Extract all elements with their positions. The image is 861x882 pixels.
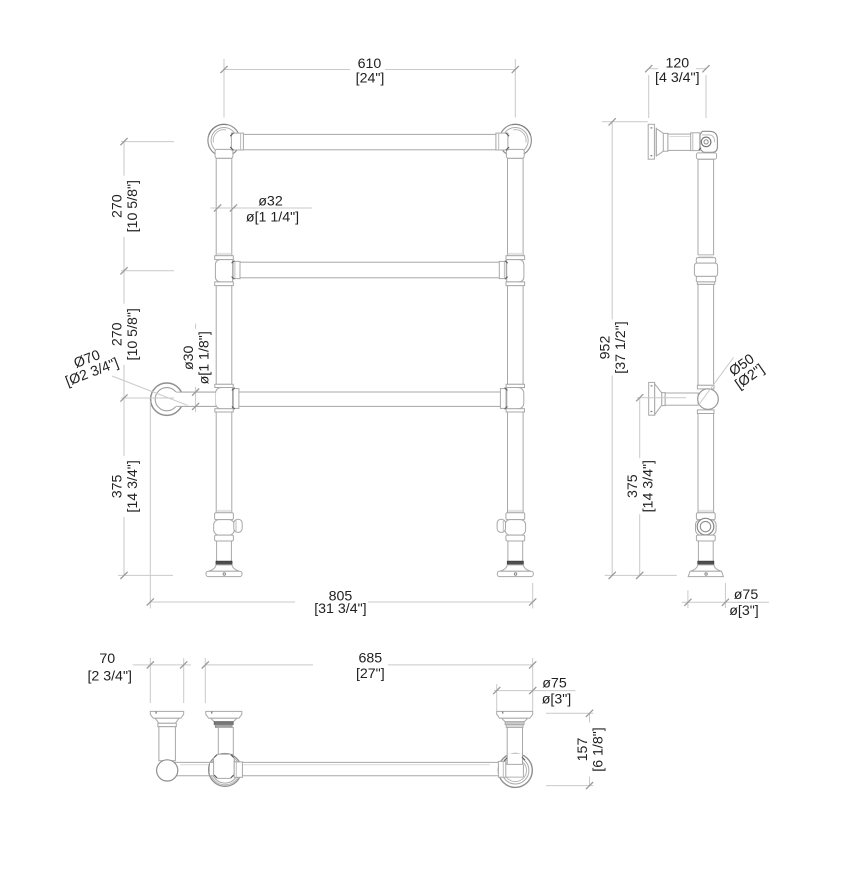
svg-text:[2 3/4"]: [2 3/4"] — [87, 669, 131, 685]
svg-text:[14 3/4"]: [14 3/4"] — [641, 460, 657, 512]
svg-text:157: 157 — [575, 738, 591, 762]
svg-text:952: 952 — [598, 336, 614, 360]
svg-text:270: 270 — [110, 194, 126, 218]
svg-text:270: 270 — [110, 322, 126, 346]
svg-text:ø30: ø30 — [181, 345, 197, 370]
svg-text:[6 1/8"]: [6 1/8"] — [591, 727, 607, 771]
svg-text:[10 5/8"]: [10 5/8"] — [125, 308, 141, 360]
svg-text:ø75: ø75 — [542, 675, 567, 691]
svg-text:ø[3"]: ø[3"] — [542, 692, 571, 708]
svg-text:685: 685 — [358, 650, 382, 666]
svg-text:[24"]: [24"] — [356, 71, 385, 87]
svg-text:ø[1 1/8"]: ø[1 1/8"] — [197, 331, 213, 384]
svg-text:[4 3/4"]: [4 3/4"] — [655, 70, 699, 86]
svg-text:375: 375 — [110, 474, 126, 498]
svg-text:ø[1 1/4"]: ø[1 1/4"] — [246, 209, 299, 225]
svg-text:[27"]: [27"] — [356, 666, 385, 682]
svg-text:[31 3/4"]: [31 3/4"] — [314, 601, 366, 617]
svg-text:[37 1/2"]: [37 1/2"] — [613, 321, 629, 373]
svg-text:[10 5/8"]: [10 5/8"] — [125, 180, 141, 232]
svg-text:70: 70 — [99, 651, 115, 667]
svg-text:375: 375 — [625, 474, 641, 498]
svg-text:ø[3"]: ø[3"] — [729, 603, 758, 619]
svg-text:[14 3/4"]: [14 3/4"] — [125, 460, 141, 512]
svg-text:ø32: ø32 — [258, 193, 283, 209]
svg-text:ø75: ø75 — [734, 587, 759, 603]
